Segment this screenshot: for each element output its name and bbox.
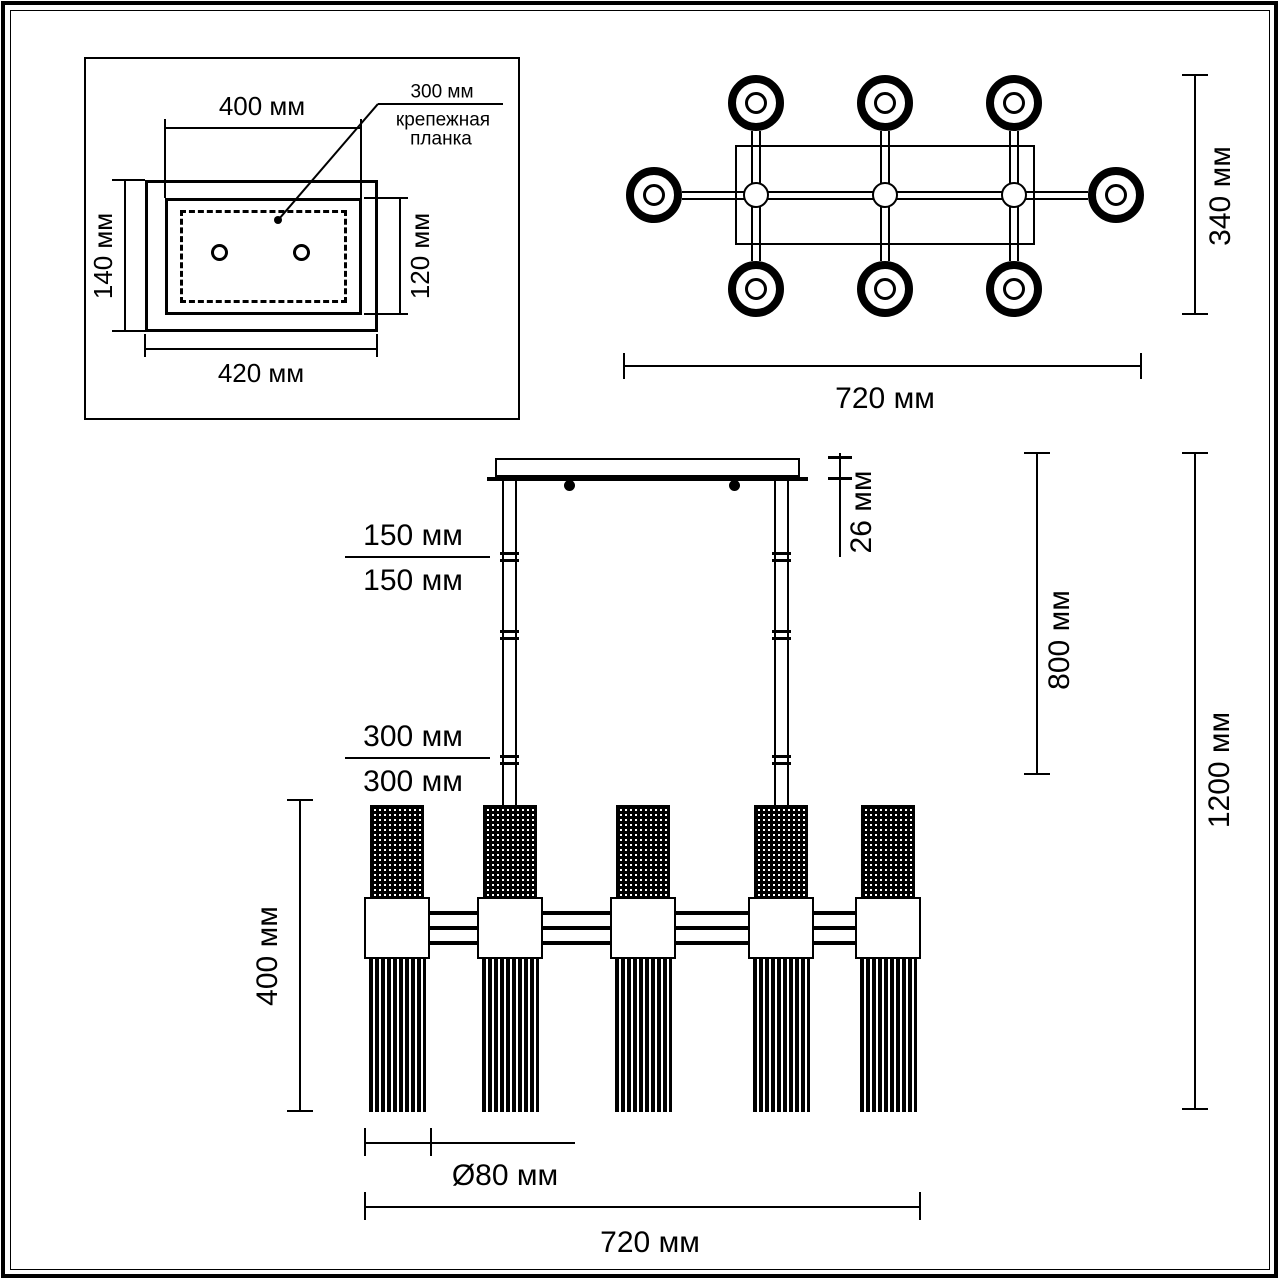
ceiling-canopy (495, 458, 800, 477)
lamp-body-box (610, 897, 676, 959)
lamp-body-box (364, 897, 430, 959)
lamp-center (874, 278, 896, 300)
lamp-shade-top (483, 805, 537, 900)
dim-line-canopy (839, 453, 841, 557)
mount-hole-left (211, 244, 228, 261)
dim-label-inner-height: 120 мм (407, 213, 433, 299)
mounting-bar-dashed-outline (180, 210, 347, 303)
rod-joint (772, 637, 791, 640)
rod-joint (500, 762, 519, 765)
dim-label-topview-width: 720 мм (835, 384, 935, 414)
lamp-center (874, 92, 896, 114)
callout-underline (378, 103, 503, 105)
dim-label-canopy: 26 мм (847, 471, 877, 554)
dim-tick (1182, 74, 1208, 76)
dim-label-outer-width: 420 мм (218, 360, 304, 386)
dim-line-outer-width (145, 348, 378, 350)
dim-line-diameter (365, 1142, 575, 1144)
dim-label-total-height: 1200 мм (1205, 712, 1235, 828)
lamp-shade-top (370, 805, 424, 900)
extension-line (112, 179, 145, 181)
lamp-center (1003, 278, 1025, 300)
lamp-center (745, 92, 767, 114)
lamp-fringe (482, 959, 539, 1112)
cable-segment-label-3: 300 мм (363, 722, 463, 752)
dim-tick (1024, 773, 1050, 775)
rod-joint (772, 552, 791, 555)
dim-tick (828, 456, 852, 459)
dim-tick (623, 353, 625, 379)
dim-label-shade-zone: 400 мм (253, 906, 283, 1006)
rod-joint (772, 630, 791, 633)
rod-joint (500, 559, 519, 562)
rod-joint (500, 755, 519, 758)
junction-circle (743, 182, 769, 208)
rod-joint (772, 762, 791, 765)
lamp-body-box (855, 897, 921, 959)
dim-line-suspension (1036, 453, 1038, 775)
dim-tick (287, 799, 313, 801)
rod-joint (772, 559, 791, 562)
extension-line (364, 313, 408, 315)
extension-line (364, 197, 408, 199)
extension-line (376, 334, 378, 357)
dim-line-shade-zone (299, 800, 301, 1112)
canopy-base-line (487, 477, 808, 481)
callout-value: 300 мм (410, 83, 473, 102)
lamp-shade-top (616, 805, 670, 900)
lamp-center (745, 278, 767, 300)
dim-tick (1182, 452, 1208, 454)
dim-tick (430, 1128, 432, 1156)
callout-label-line2: планка (410, 130, 472, 149)
dim-tick (919, 1192, 921, 1220)
cable-segment-label-1: 150 мм (363, 521, 463, 551)
segment-divider (345, 556, 490, 558)
extension-line (164, 119, 166, 198)
canopy-screw (564, 480, 575, 491)
cable-segment-label-4: 300 мм (363, 767, 463, 797)
dim-tick (1140, 353, 1142, 379)
dim-tick (1182, 1108, 1208, 1110)
dim-label-depth: 340 мм (1206, 146, 1236, 246)
extension-line (112, 330, 145, 332)
dim-label-outer-height: 140 мм (90, 213, 116, 299)
dim-tick (364, 1192, 366, 1220)
lamp-body-box (748, 897, 814, 959)
dim-line-depth (1194, 75, 1196, 315)
rod-joint (772, 755, 791, 758)
dim-line-total-height (1194, 453, 1196, 1110)
lamp-shade-top (754, 805, 808, 900)
lamp-fringe (753, 959, 810, 1112)
junction-circle (1001, 182, 1027, 208)
lamp-fringe (615, 959, 672, 1112)
dim-tick (1024, 452, 1050, 454)
lamp-body-box (477, 897, 543, 959)
callout-label-line1: крепежная (396, 111, 490, 130)
dim-tick (364, 1128, 366, 1156)
lamp-fringe (369, 959, 426, 1112)
lamp-fringe (860, 959, 917, 1112)
extension-line (144, 334, 146, 357)
dim-label-diameter: Ø80 мм (452, 1161, 558, 1191)
extension-line (360, 119, 362, 198)
dim-line-topview-width (624, 365, 1142, 367)
segment-divider (345, 757, 490, 759)
mount-hole-right (293, 244, 310, 261)
dim-tick (287, 1110, 313, 1112)
dim-line-inner-width (165, 127, 362, 129)
cable-segment-label-2: 150 мм (363, 566, 463, 596)
lamp-shade-top (861, 805, 915, 900)
dim-label-inner-width: 400 мм (219, 93, 305, 119)
dim-line-total-width (365, 1206, 921, 1208)
rod-joint (500, 637, 519, 640)
lamp-center (1105, 184, 1127, 206)
dim-line-outer-height (124, 180, 126, 332)
rod-joint (500, 552, 519, 555)
dim-label-total-width: 720 мм (600, 1228, 700, 1258)
dim-line-inner-height (399, 198, 401, 315)
canopy-screw (729, 480, 740, 491)
dim-tick (1182, 313, 1208, 315)
junction-circle (872, 182, 898, 208)
technical-drawing-sheet: 300 мм крепежная планка 400 мм 420 мм 14… (0, 0, 1280, 1280)
dim-label-suspension: 800 мм (1045, 590, 1075, 690)
lamp-center (1003, 92, 1025, 114)
rod-joint (500, 630, 519, 633)
lamp-center (643, 184, 665, 206)
